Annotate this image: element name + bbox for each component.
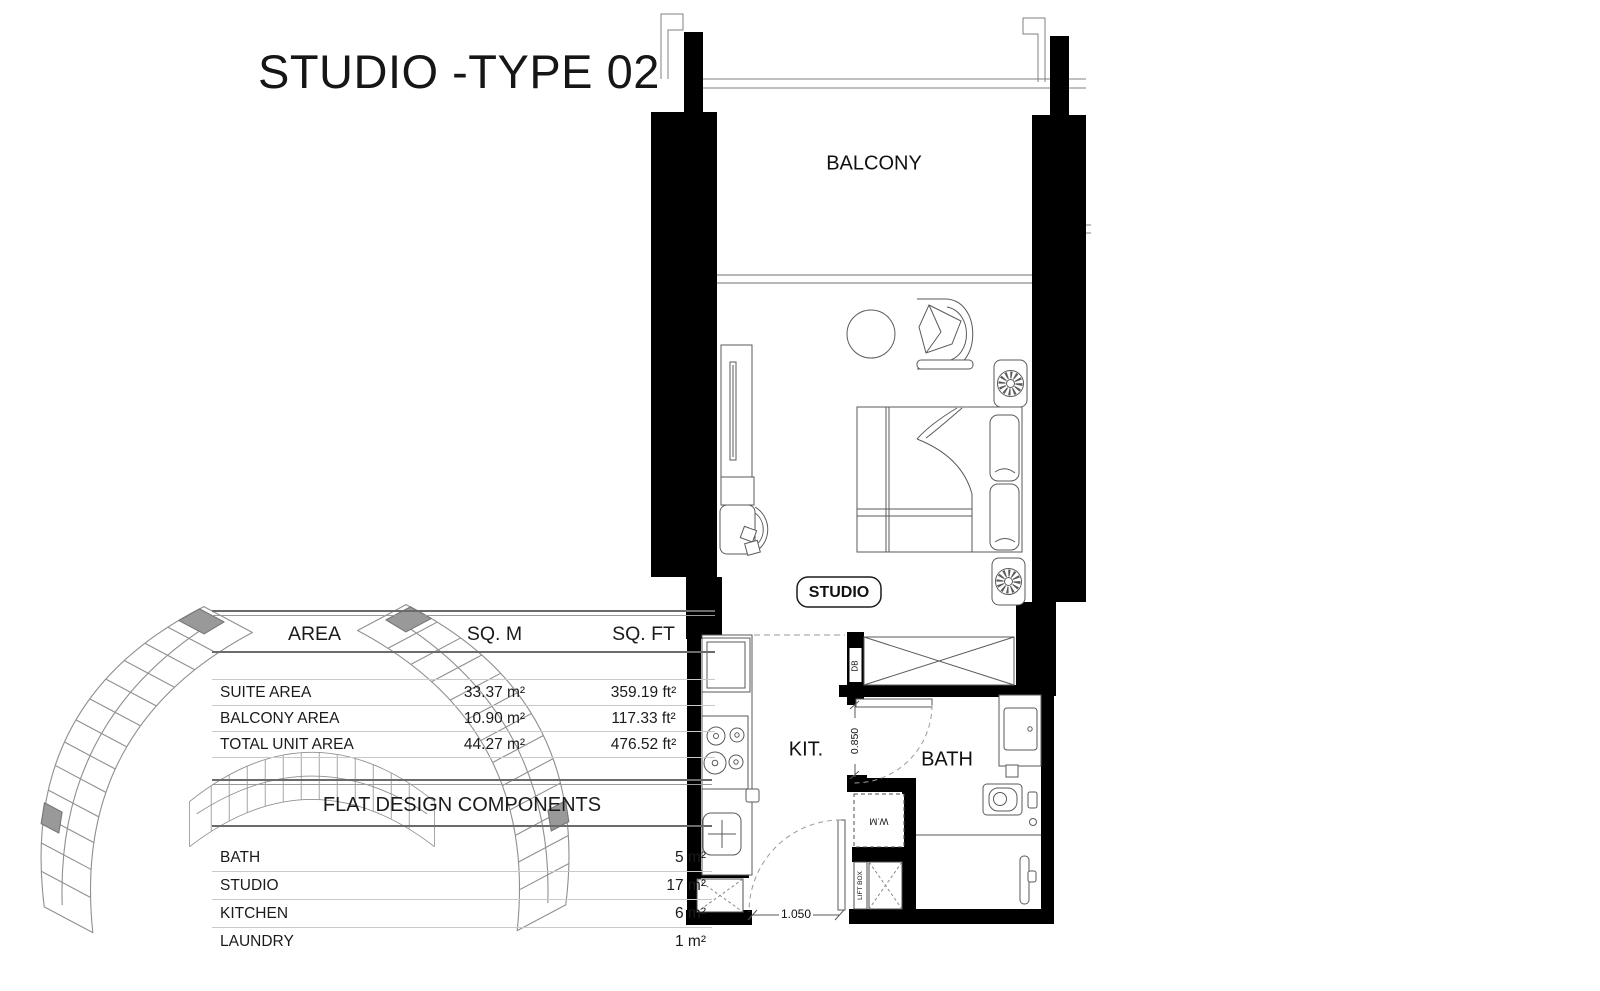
- table-row: BALCONY AREA 10.90 m² 117.33 ft²: [212, 706, 715, 732]
- component-label: LAUNDRY: [220, 933, 294, 951]
- component-value: 5 m²: [675, 849, 706, 867]
- balcony-railing: [661, 14, 1091, 233]
- wm-label: W.M: [870, 815, 889, 826]
- round-table: [847, 310, 895, 358]
- table-row: SUITE AREA 33.37 m² 359.19 ft²: [212, 680, 715, 706]
- row-sqm: 33.37 m²: [417, 684, 572, 702]
- component-label: STUDIO: [220, 877, 279, 895]
- entry-door-dimension: 1.050: [781, 907, 811, 921]
- studio-label: STUDIO: [809, 584, 869, 601]
- wardrobe: [864, 637, 1014, 685]
- component-label: BATH: [220, 849, 260, 867]
- component-row: LAUNDRY 1 m²: [212, 928, 712, 955]
- studio-label-badge: STUDIO: [797, 577, 881, 607]
- bath-label: BATH: [922, 748, 974, 770]
- row-sqft: 117.33 ft²: [572, 710, 715, 728]
- component-row: STUDIO 17 m²: [212, 872, 712, 900]
- bath-door-dimension: 0.850: [849, 728, 861, 754]
- components-title: FLAT DESIGN COMPONENTS: [212, 785, 712, 825]
- floor-plan-sheet: STUDIO -TYPE 02: [0, 0, 1600, 991]
- db-label: DB: [851, 660, 860, 671]
- area-table: AREA SQ. M SQ. FT SUITE AREA 33.37 m² 35…: [212, 610, 715, 758]
- db-panel: DB: [850, 648, 862, 682]
- component-row: KITCHEN 6 m²: [212, 900, 712, 928]
- row-sqft: 476.52 ft²: [572, 736, 715, 754]
- bath-fixtures: [916, 695, 1041, 904]
- row-sqm: 10.90 m²: [417, 710, 572, 728]
- page-title: STUDIO -TYPE 02: [258, 44, 660, 99]
- shelf: [721, 477, 754, 505]
- component-value: 1 m²: [675, 933, 706, 951]
- balcony-label: BALCONY: [827, 152, 923, 174]
- plant-pot: [992, 558, 1025, 605]
- lift-box-label: LIFT BOX: [858, 870, 865, 899]
- shower-handle: [1028, 871, 1036, 882]
- col-header-sqft: SQ. FT: [572, 623, 715, 646]
- tv-console: [721, 345, 754, 505]
- kitchen-label: KIT.: [789, 738, 823, 760]
- header-rule: [212, 825, 712, 827]
- header-rule: [212, 651, 715, 653]
- component-value: 17 m²: [666, 877, 706, 895]
- washing-machine: W.M: [854, 794, 904, 847]
- armchair: [917, 299, 973, 369]
- row-label: BALCONY AREA: [212, 710, 417, 728]
- desk-chair: [720, 505, 768, 555]
- pillow: [990, 415, 1019, 481]
- row-label: TOTAL UNIT AREA: [212, 736, 417, 754]
- col-header-area: AREA: [212, 623, 417, 646]
- row-sqm: 44.27 m²: [417, 736, 572, 754]
- bed: [857, 407, 1022, 552]
- plant-pot: [994, 360, 1027, 407]
- switch-box: [746, 789, 759, 802]
- row-sqft: 359.19 ft²: [572, 684, 715, 702]
- area-table-header: AREA SQ. M SQ. FT: [212, 616, 715, 651]
- parapet-hook-left: [661, 14, 683, 79]
- pillow: [990, 484, 1019, 550]
- parapet-hook-right: [1023, 18, 1045, 82]
- components-table: FLAT DESIGN COMPONENTS BATH 5 m² STUDIO …: [212, 779, 712, 955]
- bath-door: [854, 699, 932, 783]
- balcony-window: [717, 275, 1032, 283]
- col-header-sqm: SQ. M: [417, 623, 572, 646]
- component-label: KITCHEN: [220, 905, 288, 923]
- entry-door: [749, 820, 845, 912]
- component-row: BATH 5 m²: [212, 844, 712, 872]
- component-value: 6 m²: [675, 905, 706, 923]
- table-row: TOTAL UNIT AREA 44.27 m² 476.52 ft²: [212, 732, 715, 758]
- row-label: SUITE AREA: [212, 684, 417, 702]
